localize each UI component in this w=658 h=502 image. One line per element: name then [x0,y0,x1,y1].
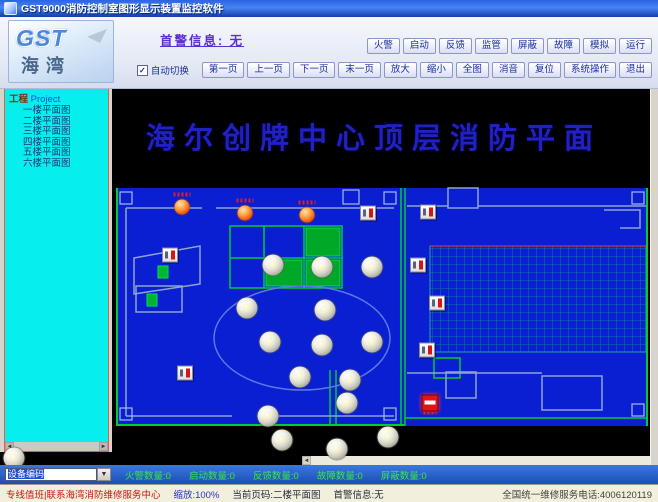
device-detector-icon[interactable] [378,427,399,448]
device-green-equip-icon[interactable] [158,266,169,279]
nav-button-下一页[interactable]: 下一页 [293,62,336,78]
device-callpoint-icon[interactable] [429,296,445,311]
state-button-row: 火警启动反馈监管屏蔽故障模拟运行 [367,38,652,54]
device-sounder-icon[interactable] [300,208,315,223]
nav-button-系统操作[interactable]: 系统操作 [564,62,616,78]
first-alarm-link[interactable]: 首警信息: 无 [160,30,244,49]
status-bar: 专线值班|联系海湾消防维修服务中心 缩放:100% 当前页码:二楼平面图 首警信… [0,484,658,502]
event-counter: 火警数量:0 [125,468,171,482]
app-icon [4,2,17,15]
nav-button-第一页[interactable]: 第一页 [202,62,245,78]
plan-title: 海尔创牌中心顶层消防平面 [146,115,602,157]
tree-root-project[interactable]: 工程 Project [5,89,108,106]
nav-button-全图[interactable]: 全图 [456,62,489,78]
device-detector-icon[interactable] [315,300,336,321]
logo-haiwan-text: 海湾 [21,52,71,78]
status-service-phone: 全国统一维修服务电话:4006120119 [502,487,652,501]
tree-item-floor-plan[interactable]: 一楼平面图 [5,106,108,117]
chevron-down-icon[interactable]: ▼ [97,468,111,481]
state-button-运行[interactable]: 运行 [619,38,652,54]
tree-item-floor-plan[interactable]: 六楼平面图 [5,159,108,170]
header-toolbar: GST 海湾 首警信息: 无 火警启动反馈监管屏蔽故障模拟运行 ✓ 自动切换 第… [0,17,658,89]
canvas-horizontal-scrollbar[interactable]: ◄ [302,456,650,465]
scroll-left-icon[interactable]: ◄ [302,456,311,465]
nav-button-消音[interactable]: 消音 [492,62,525,78]
event-counter: 故障数量:0 [317,468,363,482]
tree-items: 一楼平面图二楼平面图三楼平面图四楼平面图五楼平面图六楼平面图 [5,106,108,169]
combobox-value[interactable]: 设备编码 [5,468,97,481]
auto-switch-checkbox[interactable]: ✓ [137,65,148,76]
device-detector-icon[interactable] [258,406,279,427]
logo-gst-text: GST [16,25,66,52]
title-bar[interactable]: GST9000消防控制室图形显示装置监控软件 [0,0,658,17]
device-detector-icon[interactable] [312,257,333,278]
auto-switch-label: 自动切换 [151,63,189,77]
nav-button-放大[interactable]: 放大 [384,62,417,78]
auto-switch-checkbox-group[interactable]: ✓ 自动切换 [137,63,189,77]
device-detector-icon[interactable] [362,257,383,278]
application-window: GST9000消防控制室图形显示装置监控软件 GST 海湾 首警信息: 无 火警… [0,0,658,502]
info-bar: 设备编码 ▼ 火警数量:0启动数量:0反馈数量:0故障数量:0屏蔽数量:0 [0,465,658,484]
nav-button-末一页[interactable]: 末一页 [338,62,381,78]
device-sounder-icon[interactable] [238,206,253,221]
device-detector-icon[interactable] [362,332,383,353]
nav-button-缩小[interactable]: 缩小 [420,62,453,78]
device-detector-icon[interactable] [337,393,358,414]
device-callpoint-icon[interactable] [162,248,178,263]
state-button-反馈[interactable]: 反馈 [439,38,472,54]
device-alarm-icon[interactable] [422,395,439,412]
gst-logo: GST 海湾 [8,20,114,83]
tree-item-floor-plan[interactable]: 五楼平面图 [5,148,108,159]
device-detector-icon[interactable] [290,367,311,388]
plan-canvas[interactable]: 海尔创牌中心顶层消防平面 ◄ [112,88,650,465]
nav-button-复位[interactable]: 复位 [528,62,561,78]
event-counter: 启动数量:0 [189,468,235,482]
device-code-combobox[interactable]: 设备编码 ▼ [5,468,111,481]
state-button-监管[interactable]: 监管 [475,38,508,54]
nav-button-上一页[interactable]: 上一页 [247,62,290,78]
status-first-alarm: 首警信息:无 [334,487,384,501]
state-button-模拟[interactable]: 模拟 [583,38,616,54]
tree-item-floor-plan[interactable]: 三楼平面图 [5,127,108,138]
device-sounder-icon[interactable] [175,200,190,215]
nav-buttons: 第一页上一页下一页末一页放大缩小全图消音复位系统操作退出 [202,62,652,78]
event-counter: 屏蔽数量:0 [381,468,427,482]
status-notice: 专线值班|联系海湾消防维修服务中心 [6,487,160,501]
canvas-vertical-scrollbar[interactable] [650,88,658,465]
device-detector-icon[interactable] [237,298,258,319]
device-callpoint-icon[interactable] [419,343,435,358]
device-detector-icon[interactable] [327,439,348,460]
event-counter: 反馈数量:0 [253,468,299,482]
logo-hand-icon [87,29,107,43]
nav-button-row: ✓ 自动切换 第一页上一页下一页末一页放大缩小全图消音复位系统操作退出 [137,62,652,78]
tree-root-en: Project [31,94,61,105]
state-button-屏蔽[interactable]: 屏蔽 [511,38,544,54]
event-counters: 火警数量:0启动数量:0反馈数量:0故障数量:0屏蔽数量:0 [125,468,427,482]
window-title: GST9000消防控制室图形显示装置监控软件 [21,1,223,16]
device-detector-icon[interactable] [260,332,281,353]
device-callpoint-icon[interactable] [420,205,436,220]
device-callpoint-icon[interactable] [177,366,193,381]
device-detector-icon[interactable] [312,335,333,356]
state-button-故障[interactable]: 故障 [547,38,580,54]
status-current-page: 当前页码:二楼平面图 [232,487,320,501]
device-callpoint-icon[interactable] [410,258,426,273]
project-tree-panel[interactable]: 工程 Project 一楼平面图二楼平面图三楼平面图四楼平面图五楼平面图六楼平面… [4,88,109,452]
device-detector-icon[interactable] [272,430,293,451]
scroll-right-icon[interactable]: ► [99,442,108,451]
device-detector-icon[interactable] [263,255,284,276]
nav-button-退出[interactable]: 退出 [619,62,652,78]
device-detector-icon[interactable] [340,370,361,391]
tree-root-cn: 工程 [9,94,28,105]
state-button-启动[interactable]: 启动 [403,38,436,54]
device-callpoint-icon[interactable] [360,206,376,221]
status-zoom: 缩放:100% [173,487,219,501]
device-green-equip-icon[interactable] [147,294,158,307]
state-button-火警[interactable]: 火警 [367,38,400,54]
